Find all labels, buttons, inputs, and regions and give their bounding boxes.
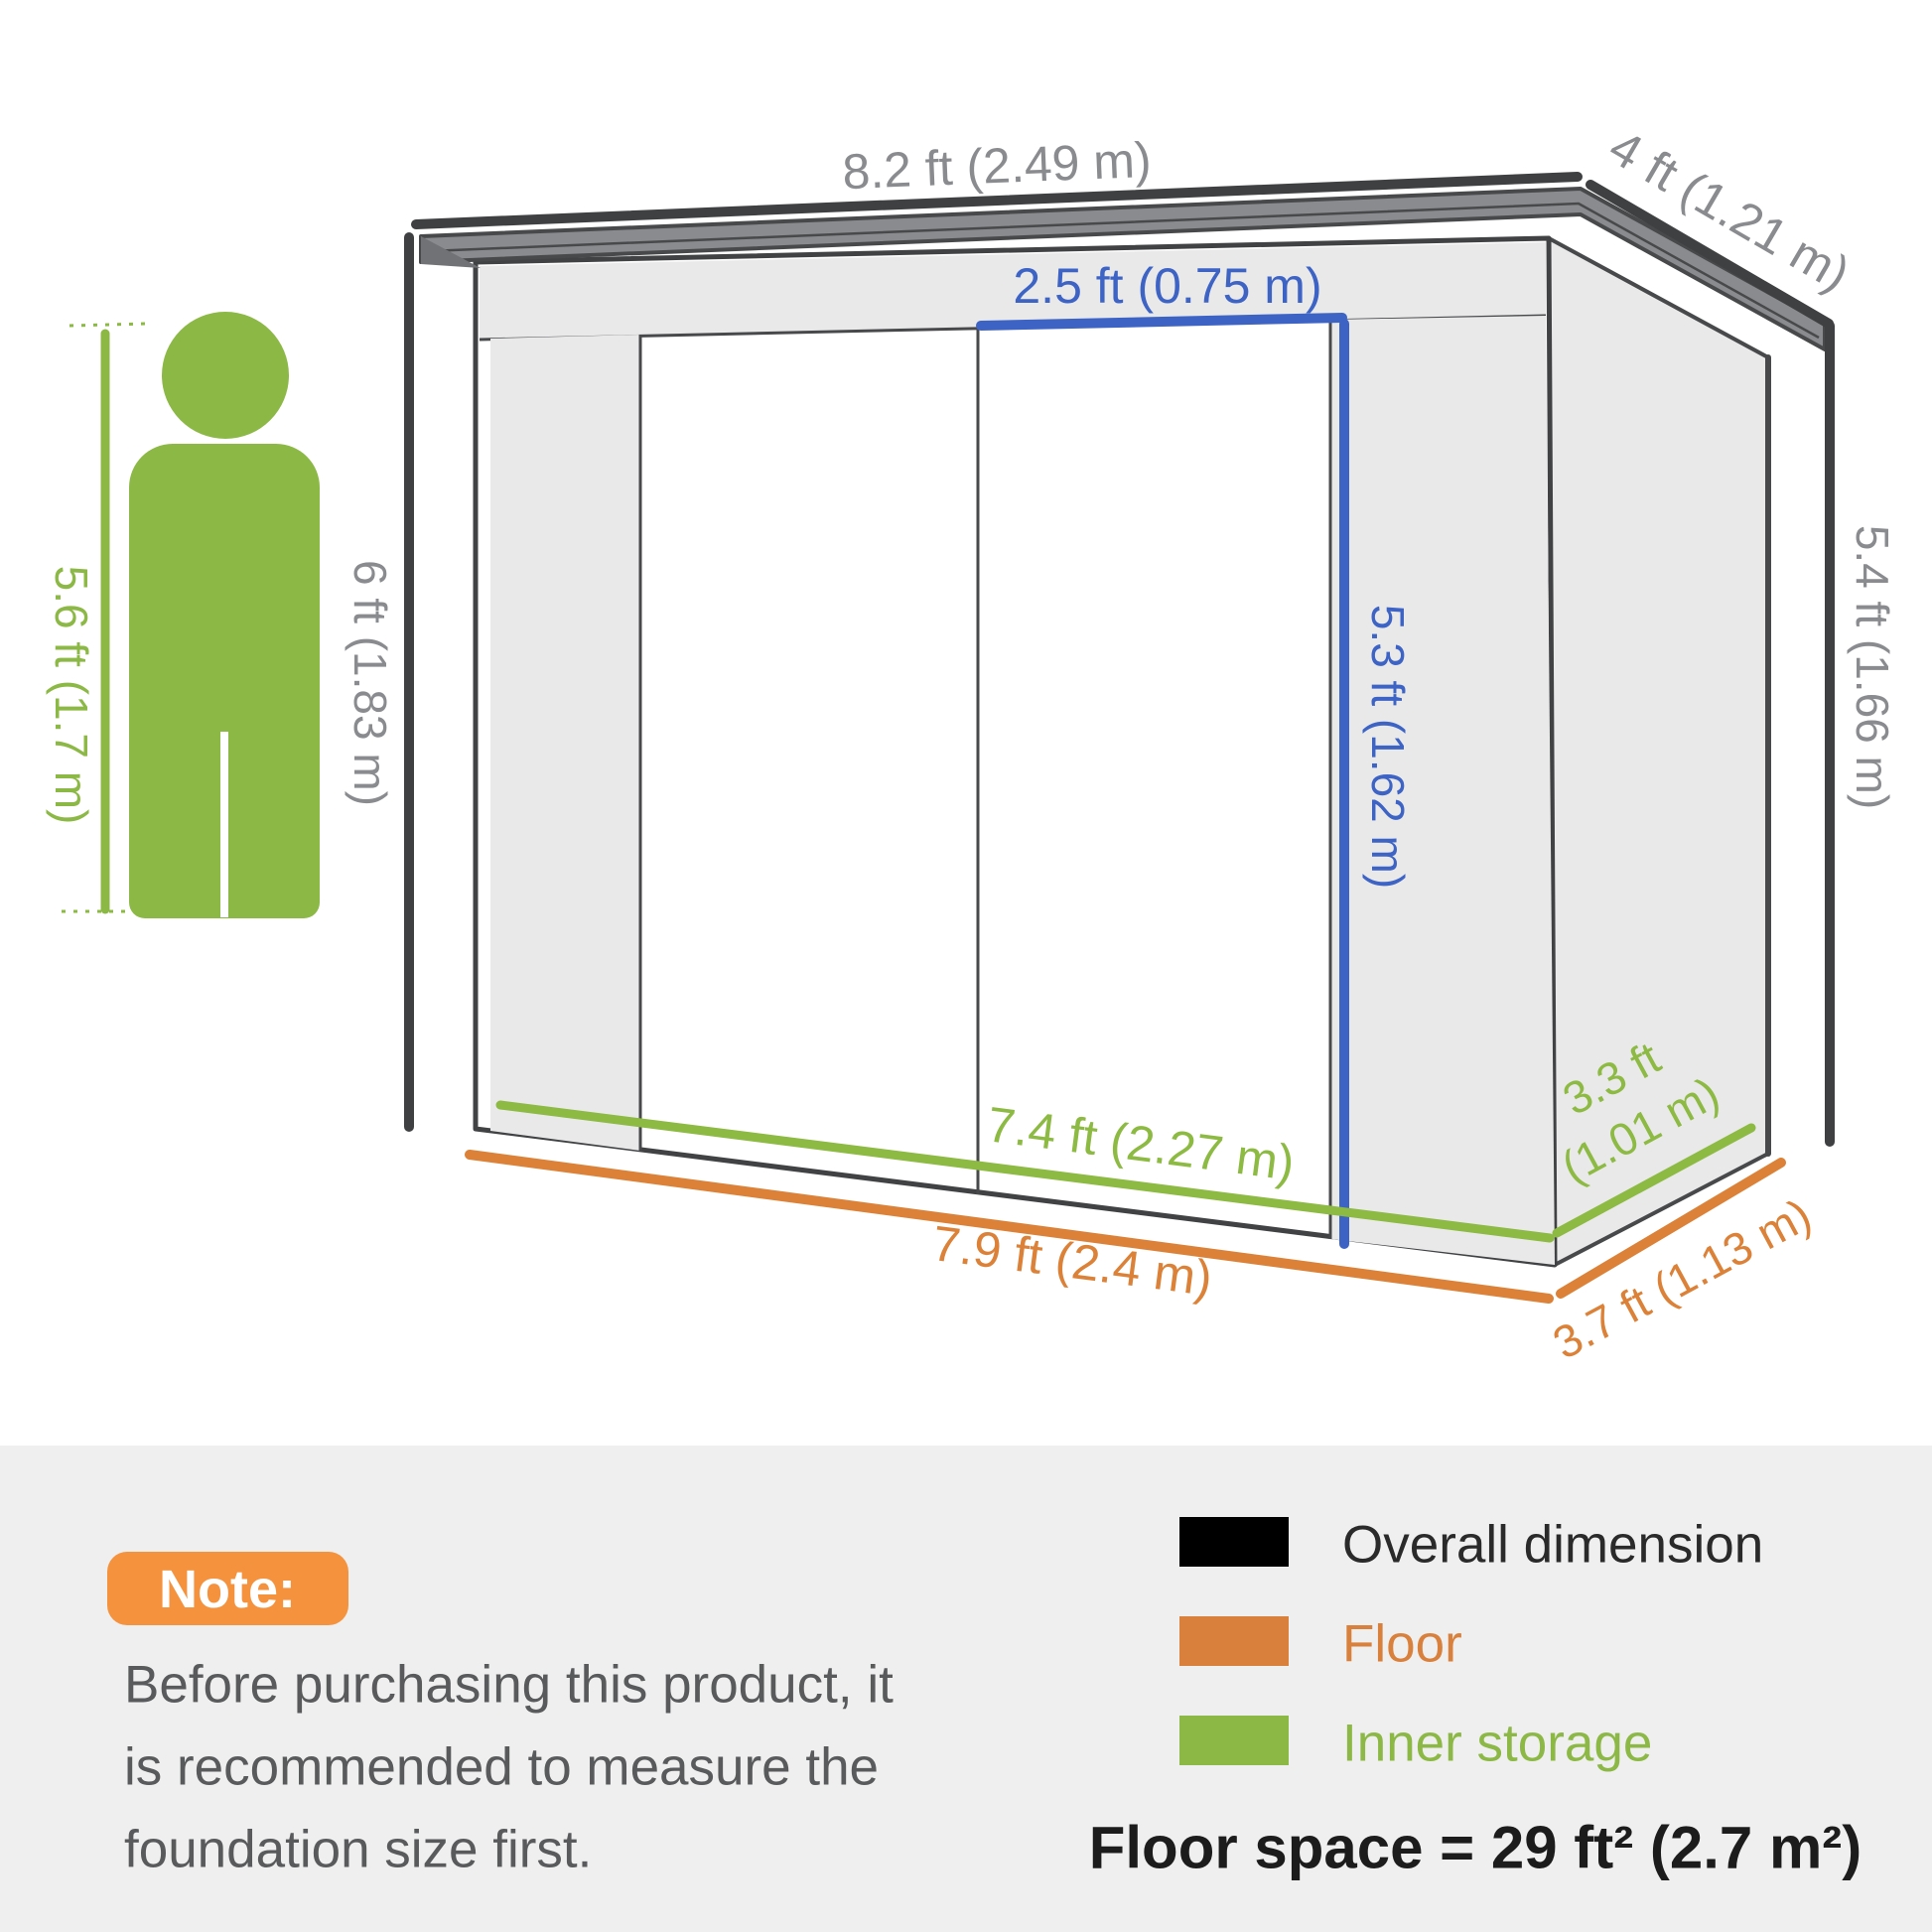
figure-head — [162, 312, 289, 439]
floor-width-label: 7.9 ft (2.4 m) — [929, 1215, 1215, 1307]
legend-swatch-overall — [1179, 1517, 1289, 1567]
roof-width-label: 8.2 ft (2.49 m) — [841, 132, 1152, 200]
legend-swatch-inner-storage — [1179, 1716, 1289, 1765]
human-figure: 5.6 ft (1.7 m) — [46, 312, 320, 918]
left-wall-strip — [490, 335, 640, 1151]
front-height-label: 6 ft (1.83 m) — [345, 560, 396, 806]
legend-swatch-floor — [1179, 1616, 1289, 1666]
door-height-label: 5.3 ft (1.62 m) — [1362, 605, 1414, 889]
legend-label-floor: Floor — [1342, 1615, 1462, 1674]
note-badge-label: Note: — [159, 1560, 296, 1619]
floor-space-total: Floor space = 29 ft² (2.7 m²) — [1089, 1815, 1863, 1881]
legend-label-overall: Overall dimension — [1342, 1516, 1763, 1575]
legend-label-inner-storage: Inner storage — [1342, 1715, 1652, 1773]
diagram-canvas: 5.6 ft (1.7 m) 6 ft (1.83 m) 8.2 ft (2.4… — [0, 0, 1932, 1932]
figure-top-dotted-tick — [69, 324, 147, 326]
note-line-2: is recommended to measure the — [124, 1738, 879, 1797]
shed-dimension-diagram: 5.6 ft (1.7 m) 6 ft (1.83 m) 8.2 ft (2.4… — [0, 0, 1932, 1932]
rear-height-label: 5.4 ft (1.66 m) — [1847, 525, 1898, 809]
note-line-3: foundation size first. — [124, 1821, 592, 1879]
person-height-label: 5.6 ft (1.7 m) — [46, 566, 97, 825]
door-width-label: 2.5 ft (0.75 m) — [1013, 258, 1321, 314]
note-line-1: Before purchasing this product, it — [124, 1656, 894, 1715]
